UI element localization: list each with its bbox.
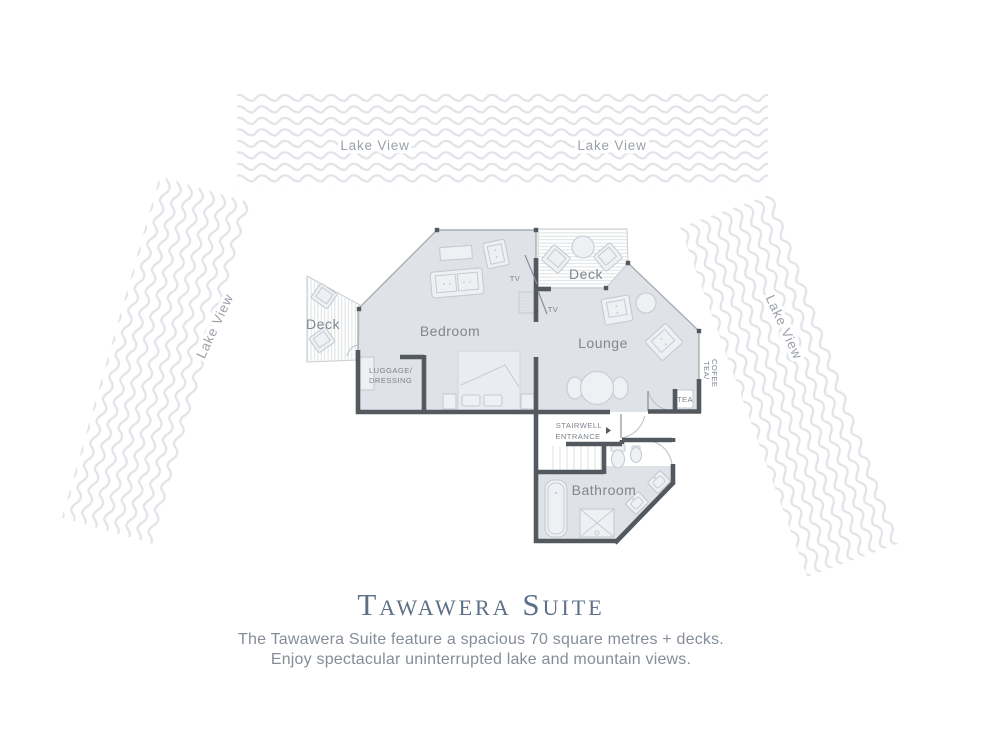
bidet [631,446,642,463]
suite-description: The Tawawera Suite feature a spacious 70… [0,630,962,670]
footer: Tawawera Suite The Tawawera Suite featur… [0,589,962,670]
side-table [636,293,656,313]
lake-view-label-top-left: Lake View [340,138,409,153]
deck-top-label: Deck [569,266,603,282]
bathroom-label: Bathroom [572,482,637,498]
deck-table [572,236,594,258]
bed [458,351,520,410]
luggage-label-line1: LUGGAGE/ [369,366,413,375]
coffee-table [440,245,473,260]
bedroom-label: Bedroom [420,323,480,339]
dining-table [581,372,614,405]
tea-label: TEA [677,395,694,404]
tv-label-2: TV [548,305,559,314]
tea-coffee-label-line2: COFEE [710,359,719,387]
stairwell-label-line1: STAIRWELL [556,421,602,430]
stairwell-label-line2: ENTRANCE [555,432,600,441]
bathtub [545,480,567,537]
deck-left-label: Deck [306,316,340,332]
luggage-label-line2: DRESSING [369,376,412,385]
pillow [484,395,502,406]
wave-band-left [62,177,252,545]
wave-band-top [237,94,768,186]
pillow [462,395,480,406]
stairs [553,446,601,470]
sofa [430,268,484,298]
armchair [483,239,510,269]
door-arc [652,441,672,464]
shower [580,509,614,537]
door-arc [621,416,645,438]
lounge-label: Lounge [578,335,628,351]
armchair [601,295,633,325]
description-line-1: The Tawawera Suite feature a spacious 70… [0,630,962,650]
direction-arrow [606,427,611,434]
dining-chair [612,377,628,399]
nightstand [443,394,456,409]
toilet [611,445,625,468]
lake-view-label-top-right: Lake View [577,138,646,153]
floor-plan-page: Lake View Lake View Lake View Lake View [0,0,1000,750]
tea-coffee-label-line1: TEA/ [702,361,711,380]
tv-label-1: TV [510,274,521,283]
suite-title: Tawawera Suite [0,589,962,621]
nightstand [521,394,534,409]
description-line-2: Enjoy spectacular uninterrupted lake and… [0,650,962,670]
